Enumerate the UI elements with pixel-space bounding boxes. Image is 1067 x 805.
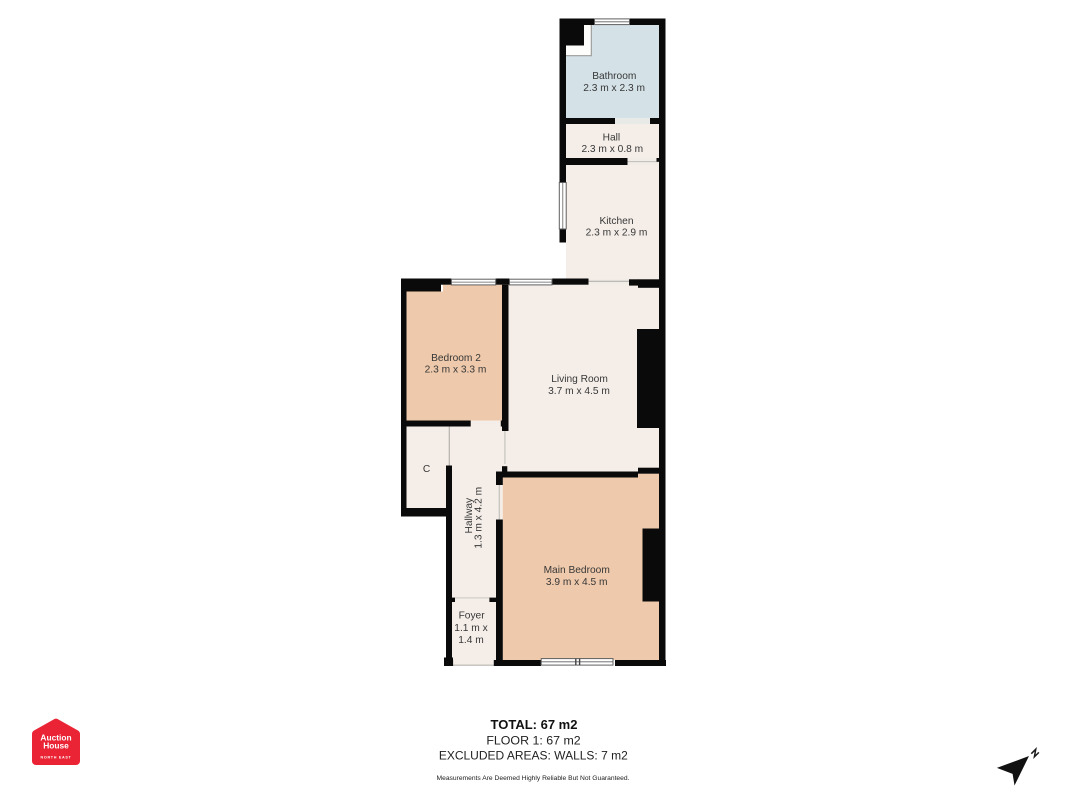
svg-text:Measurements Are Deemed Highly: Measurements Are Deemed Highly Reliable … bbox=[437, 775, 630, 782]
svg-text:EXCLUDED AREAS: WALLS: 7 m2: EXCLUDED AREAS: WALLS: 7 m2 bbox=[439, 748, 628, 762]
svg-text:2.3 m x 2.9 m: 2.3 m x 2.9 m bbox=[586, 228, 648, 239]
svg-text:3.7 m x 4.5 m: 3.7 m x 4.5 m bbox=[548, 386, 610, 397]
svg-text:1.1 m x: 1.1 m x bbox=[454, 623, 487, 634]
svg-text:2.3 m x 0.8 m: 2.3 m x 0.8 m bbox=[581, 144, 643, 155]
svg-text:2.3 m x 3.3 m: 2.3 m x 3.3 m bbox=[425, 364, 487, 375]
svg-text:NORTH EAST: NORTH EAST bbox=[41, 755, 72, 759]
svg-text:FLOOR 1: 67 m2: FLOOR 1: 67 m2 bbox=[486, 734, 580, 748]
svg-text:Bathroom: Bathroom bbox=[592, 71, 636, 82]
svg-text:TOTAL: 67 m2: TOTAL: 67 m2 bbox=[491, 717, 578, 732]
svg-text:1.3 m x 4.2 m: 1.3 m x 4.2 m bbox=[474, 487, 485, 549]
svg-text:3.9 m x 4.5 m: 3.9 m x 4.5 m bbox=[546, 577, 608, 588]
svg-text:Main Bedroom: Main Bedroom bbox=[544, 565, 610, 576]
svg-text:1.4 m: 1.4 m bbox=[458, 635, 483, 646]
svg-text:Hall: Hall bbox=[603, 133, 621, 144]
svg-text:House: House bbox=[43, 741, 69, 751]
svg-text:C: C bbox=[423, 464, 430, 475]
svg-text:Bedroom 2: Bedroom 2 bbox=[431, 353, 481, 364]
svg-text:Kitchen: Kitchen bbox=[600, 216, 634, 227]
svg-text:Foyer: Foyer bbox=[459, 611, 486, 622]
svg-text:Living Room: Living Room bbox=[551, 374, 608, 385]
svg-text:2.3 m x 2.3 m: 2.3 m x 2.3 m bbox=[583, 83, 645, 94]
